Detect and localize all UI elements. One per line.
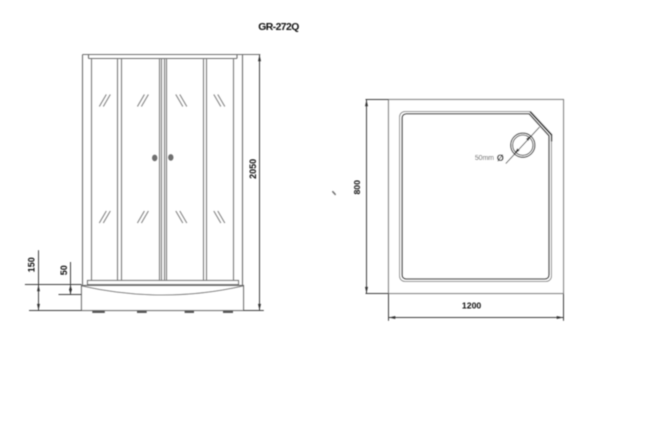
svg-text:Ø: Ø	[497, 153, 504, 163]
svg-text:50: 50	[59, 265, 69, 275]
svg-text:2050: 2050	[248, 159, 258, 179]
svg-text:50mm: 50mm	[475, 155, 494, 162]
svg-text:GR-272Q: GR-272Q	[258, 22, 299, 33]
svg-text:800: 800	[352, 180, 362, 195]
svg-text:150: 150	[27, 257, 37, 272]
svg-text:1200: 1200	[462, 301, 481, 311]
